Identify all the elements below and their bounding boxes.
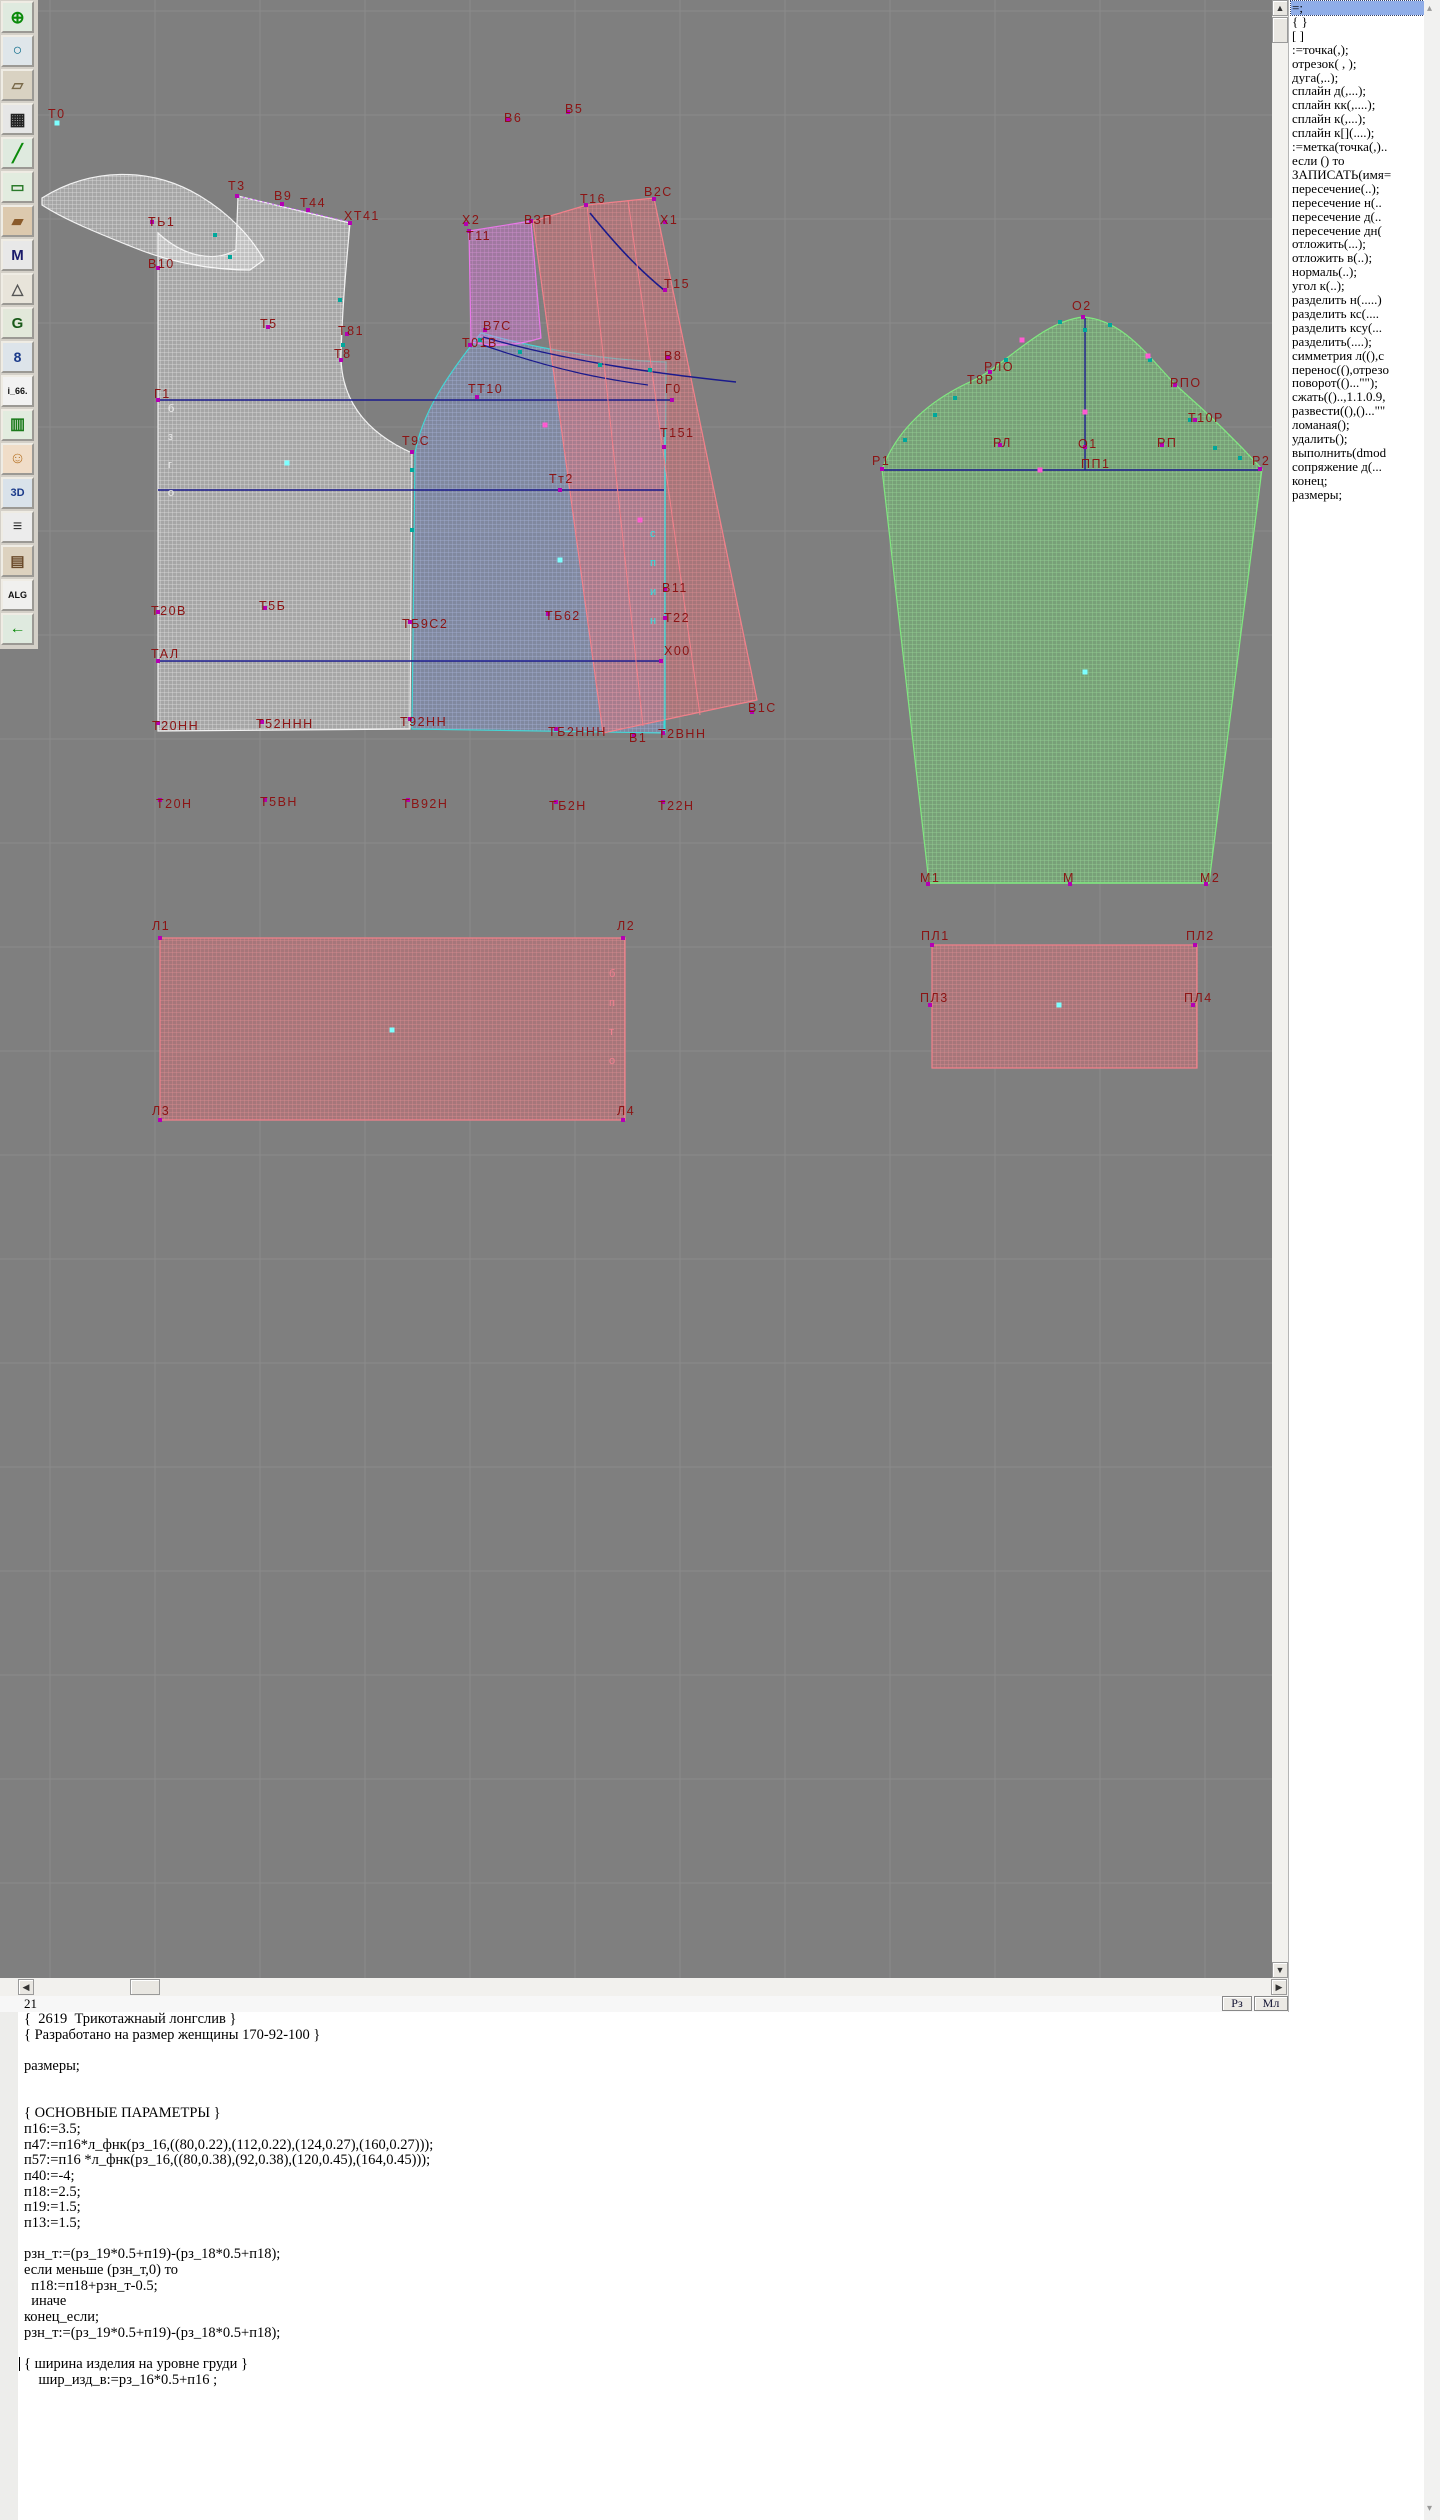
grid-icon-glyph: ▦	[9, 111, 25, 128]
zoom-in-icon[interactable]: ⊕	[1, 1, 34, 33]
algorithms-icon-glyph: ALG	[8, 591, 27, 600]
command-item[interactable]: удалить();	[1291, 432, 1424, 446]
grading-icon-glyph: G	[12, 316, 24, 331]
command-item[interactable]: { }	[1291, 15, 1424, 29]
pattern-piece-icon-glyph: ▰	[12, 214, 24, 229]
svg-text:с: с	[650, 528, 656, 540]
svg-text:ТВ92Н: ТВ92Н	[402, 797, 448, 811]
svg-text:Х00: Х00	[664, 644, 691, 658]
svg-text:В1: В1	[629, 731, 647, 745]
svg-text:Т8: Т8	[334, 347, 352, 361]
code-line: рзн_т:=(рз_19*0.5+п19)-(рз_18*0.5+п18);	[18, 2247, 1426, 2263]
svg-text:Х1: Х1	[660, 213, 678, 227]
svg-text:РП: РП	[1157, 436, 1177, 450]
svg-text:Р1: Р1	[872, 454, 890, 468]
code-line: размеры;	[18, 2059, 1426, 2075]
command-item[interactable]: разделить н(.....)	[1291, 293, 1424, 307]
command-item[interactable]: [ ]	[1291, 29, 1424, 43]
svg-text:М1: М1	[920, 871, 940, 885]
svg-text:Т16: Т16	[580, 192, 606, 206]
command-item[interactable]: сжать(()..,1.1.0.9,	[1291, 390, 1424, 404]
svg-text:В6: В6	[504, 111, 522, 125]
svg-text:ПЛ2: ПЛ2	[1186, 929, 1215, 943]
svg-text:ТБ62: ТБ62	[545, 609, 581, 623]
svg-text:В7С: В7С	[483, 319, 512, 333]
svg-text:Л1: Л1	[152, 919, 170, 933]
ml-button[interactable]: Мл	[1254, 1996, 1288, 2011]
command-item[interactable]: пересечение(..);	[1291, 182, 1424, 196]
scroll-left-icon[interactable]: ◀	[18, 1979, 34, 1995]
code-line: п16:=3.5;	[18, 2122, 1426, 2138]
command-item[interactable]: пересечение д(..	[1291, 210, 1424, 224]
code-line: п18:=2.5;	[18, 2185, 1426, 2201]
size-table-icon-glyph: ▥	[10, 417, 25, 433]
svg-text:Т151: Т151	[660, 426, 695, 440]
text-list-icon[interactable]: ≡	[1, 511, 34, 543]
command-item[interactable]: конец;	[1291, 474, 1424, 488]
svg-text:В5: В5	[565, 102, 583, 116]
svg-text:ВЗП: ВЗП	[524, 213, 553, 227]
canvas-vertical-scrollbar[interactable]: ▲ ▼	[1272, 0, 1288, 1978]
svg-text:Т11: Т11	[466, 229, 491, 243]
code-line: если меньше (рзн_т,0) то	[18, 2263, 1426, 2279]
command-item[interactable]: сплайн к(,...);	[1291, 112, 1424, 126]
code-line: { ОСНОВНЫЕ ПАРАМЕТРЫ }	[18, 2106, 1426, 2122]
svg-text:М: М	[1063, 871, 1075, 885]
svg-text:ПЛ1: ПЛ1	[921, 929, 950, 943]
svg-text:ТАЛ: ТАЛ	[151, 647, 180, 661]
command-item[interactable]: если () то	[1291, 154, 1424, 168]
command-item[interactable]: сплайн к[](....);	[1291, 126, 1424, 140]
command-item[interactable]: разделить кс(....	[1291, 307, 1424, 321]
command-item[interactable]: размеры;	[1291, 488, 1424, 502]
command-item[interactable]: ломаная();	[1291, 418, 1424, 432]
code-line	[18, 2090, 1426, 2106]
command-item[interactable]: перенос((),отрезо	[1291, 363, 1424, 377]
svg-text:Т20НН: Т20НН	[152, 719, 199, 733]
svg-text:Т22Н: Т22Н	[658, 799, 695, 813]
text-list-icon-glyph: ≡	[13, 519, 22, 535]
svg-text:Т3: Т3	[228, 179, 246, 193]
command-item[interactable]: отрезок( , );	[1291, 57, 1424, 71]
code-line: рзн_т:=(рз_19*0.5+п19)-(рз_18*0.5+п18);	[18, 2326, 1426, 2342]
segment-icon-glyph: ╱	[12, 145, 22, 162]
zoom-in-icon-glyph: ⊕	[10, 9, 24, 26]
svg-text:Т2ВНН: Т2ВНН	[658, 727, 706, 741]
current-line-number: 21	[24, 1996, 37, 2012]
code-line	[18, 2075, 1426, 2091]
svg-text:ПЛ3: ПЛ3	[920, 991, 949, 1005]
code-line: п47:=п16*л_фнк(рз_16,((80,0.22),(112,0.2…	[18, 2138, 1426, 2154]
svg-text:Л3: Л3	[152, 1104, 170, 1118]
svg-text:В10: В10	[148, 257, 175, 271]
code-line: п40:=-4;	[18, 2169, 1426, 2185]
command-item[interactable]: пересечение дн(	[1291, 224, 1424, 238]
svg-text:ТБ2Н: ТБ2Н	[549, 799, 587, 813]
status-bar: 21 Рз Мл	[0, 1996, 1288, 2012]
command-list: =;{ }[ ]:=точка(,);отрезок( , );дуга(,..…	[1291, 1, 1424, 502]
svg-text:Г0: Г0	[665, 382, 682, 396]
svg-text:ПЛ4: ПЛ4	[1184, 991, 1213, 1005]
svg-text:ТБ2ННН: ТБ2ННН	[548, 725, 607, 739]
svg-text:Л4: Л4	[617, 1104, 635, 1118]
command-item[interactable]: угол к(..);	[1291, 279, 1424, 293]
svg-text:О2: О2	[1072, 299, 1092, 313]
print-preview-icon-glyph: ▱	[12, 78, 24, 93]
zoom-icon-glyph: ○	[13, 43, 23, 59]
svg-text:ХТ41: ХТ41	[344, 209, 380, 223]
pattern-canvas[interactable]: Т0Т3В9Т44ХТ41ТЬ1В10Т5Т81Т8Г1Т9СТТ10Г0Т15…	[0, 0, 1272, 1978]
svg-text:п: п	[609, 997, 615, 1009]
svg-text:Л2: Л2	[617, 919, 635, 933]
svg-text:Т01В: Т01В	[462, 336, 498, 350]
view-3d-icon[interactable]: 3D	[1, 477, 34, 509]
vertical-scroll-thumb[interactable]	[1272, 17, 1288, 43]
command-item[interactable]: развести((),()...""	[1291, 404, 1424, 418]
command-item[interactable]: нормаль(..);	[1291, 265, 1424, 279]
image-icon[interactable]: ▭	[1, 171, 34, 203]
command-item[interactable]: сплайн д(,...);	[1291, 84, 1424, 98]
code-line	[18, 2043, 1426, 2059]
svg-text:Т9С: Т9С	[402, 434, 430, 448]
zoom-icon[interactable]: ○	[1, 35, 34, 67]
command-item[interactable]: :=точка(,);	[1291, 43, 1424, 57]
code-line: конец_если;	[18, 2310, 1426, 2326]
command-item[interactable]: разделить ксу(...	[1291, 321, 1424, 335]
grid-icon[interactable]: ▦	[1, 103, 34, 135]
drafting-tools-icon-glyph: △	[12, 282, 24, 297]
svg-text:и: и	[650, 586, 656, 598]
code-line: п57:=п16 *л_фнк(рз_16,((80,0.38),(92,0.3…	[18, 2153, 1426, 2169]
svg-text:п: п	[650, 557, 656, 569]
code-line	[18, 2341, 1426, 2357]
pattern-pieces[interactable]	[42, 174, 1262, 1120]
command-item[interactable]: дуга(,..);	[1291, 71, 1424, 85]
command-item[interactable]: сопряжение д(...	[1291, 460, 1424, 474]
size-table-icon[interactable]: ▥	[1, 409, 34, 441]
command-item[interactable]: сплайн кк(,....);	[1291, 98, 1424, 112]
code-line: шир_изд_в:=рз_16*0.5+п16 ;	[18, 2373, 1426, 2389]
svg-text:В1С: В1С	[748, 701, 777, 715]
svg-text:Р2: Р2	[1252, 454, 1270, 468]
docs-icon[interactable]: ▤	[1, 545, 34, 577]
svg-text:ТТ10: ТТ10	[468, 382, 503, 396]
exit-icon[interactable]: ←	[1, 613, 34, 645]
svg-text:Тт2: Тт2	[549, 472, 574, 486]
algorithms-icon[interactable]: ALG	[1, 579, 34, 611]
svg-text:Т5: Т5	[260, 317, 278, 331]
command-item[interactable]: :=метка(точка(,)..	[1291, 140, 1424, 154]
exit-icon-glyph: ←	[10, 621, 26, 637]
ruler-icon-glyph: 8	[14, 350, 22, 364]
scroll-up-icon[interactable]: ▲	[1272, 0, 1288, 16]
code-line	[18, 2232, 1426, 2248]
svg-text:Т10Р: Т10Р	[1188, 411, 1224, 425]
code-line: п13:=1.5;	[18, 2216, 1426, 2232]
rail-up-icon[interactable]: ▴	[1427, 3, 1432, 14]
svg-text:т: т	[609, 1026, 614, 1038]
canvas-horizontal-scrollbar[interactable]: ◀ ▶	[0, 1978, 1288, 1996]
svg-text:М2: М2	[1200, 871, 1220, 885]
command-item[interactable]: ЗАПИСАТЬ(имя=	[1291, 168, 1424, 182]
svg-text:ТБ9С2: ТБ9С2	[402, 617, 448, 631]
app-window: Т0Т3В9Т44ХТ41ТЬ1В10Т5Т81Т8Г1Т9СТТ10Г0Т15…	[0, 0, 1440, 2520]
svg-text:ПП1: ПП1	[1081, 457, 1110, 471]
scroll-right-icon[interactable]: ▶	[1271, 1979, 1287, 1995]
svg-text:РПО: РПО	[1170, 376, 1202, 390]
file-i66-icon-glyph: i_66.	[7, 387, 27, 396]
command-item[interactable]: выполнить(dmod	[1291, 446, 1424, 460]
command-item[interactable]: поворот(()..."");	[1291, 376, 1424, 390]
code-line: п18:=п18+рзн_т-0.5;	[18, 2279, 1426, 2295]
command-item[interactable]: пересечение н(..	[1291, 196, 1424, 210]
editor-margin	[0, 1978, 18, 2520]
model-photo-icon-glyph: ☺	[9, 451, 25, 467]
grading-icon[interactable]: G	[1, 307, 34, 339]
band-rect-small	[932, 945, 1197, 1068]
svg-text:В9: В9	[274, 189, 292, 203]
measurements-icon-glyph: M	[11, 248, 24, 263]
code-editor[interactable]: { 2619 Трикотажнаый лонгслив }{ Разработ…	[18, 2012, 1426, 2520]
code-line: иначе	[18, 2294, 1426, 2310]
svg-text:О1: О1	[1078, 437, 1098, 451]
svg-text:ТЬ1: ТЬ1	[148, 215, 175, 229]
code-line: { ширина изделия на уровне груди }	[18, 2357, 1426, 2373]
svg-text:Т44: Т44	[300, 196, 326, 210]
svg-text:В2С: В2С	[644, 185, 673, 199]
print-preview-icon[interactable]: ▱	[1, 69, 34, 101]
svg-text:Х2: Х2	[462, 213, 480, 227]
measurements-icon[interactable]: M	[1, 239, 34, 271]
model-photo-icon[interactable]: ☺	[1, 443, 34, 475]
rz-button[interactable]: Рз	[1222, 1996, 1252, 2011]
text-caret	[19, 2357, 20, 2371]
segment-icon[interactable]: ╱	[1, 137, 34, 169]
svg-text:Т5ВН: Т5ВН	[260, 795, 298, 809]
scroll-down-icon[interactable]: ▼	[1272, 1962, 1288, 1978]
drafting-tools-icon[interactable]: △	[1, 273, 34, 305]
image-icon-glyph: ▭	[10, 180, 24, 195]
svg-text:з: з	[168, 431, 173, 443]
pattern-piece-icon[interactable]: ▰	[1, 205, 34, 237]
ruler-icon[interactable]: 8	[1, 341, 34, 373]
rail-down-icon[interactable]: ▾	[1427, 2503, 1432, 2514]
svg-text:н: н	[650, 615, 656, 627]
command-item[interactable]: отложить(...);	[1291, 237, 1424, 251]
svg-text:Т81: Т81	[338, 324, 364, 338]
command-item[interactable]: =;	[1291, 1, 1424, 15]
svg-text:РЛ: РЛ	[993, 436, 1012, 450]
svg-text:о: о	[609, 1055, 615, 1067]
svg-text:В11: В11	[662, 581, 688, 595]
file-i66-icon[interactable]: i_66.	[1, 375, 34, 407]
view-3d-icon-glyph: 3D	[10, 488, 24, 499]
command-item[interactable]: симметрия л((),с	[1291, 349, 1424, 363]
docs-icon-glyph: ▤	[10, 554, 24, 569]
svg-text:Т20Н: Т20Н	[156, 797, 193, 811]
horizontal-scroll-thumb[interactable]	[130, 1979, 160, 1995]
right-scrollbar-rail[interactable]: ▴ ▾	[1424, 0, 1440, 2520]
svg-text:Т52ННН: Т52ННН	[256, 717, 314, 731]
code-line: { 2619 Трикотажнаый лонгслив }	[18, 2012, 1426, 2028]
svg-text:Т8Р: Т8Р	[967, 373, 994, 387]
svg-text:Т20В: Т20В	[151, 604, 187, 618]
svg-text:б: б	[609, 968, 615, 980]
svg-text:РЛО: РЛО	[984, 360, 1014, 374]
svg-text:Т5Б: Т5Б	[259, 599, 286, 613]
code-line: { Разработано на размер женщины 170-92-1…	[18, 2028, 1426, 2044]
svg-text:В8: В8	[664, 349, 682, 363]
svg-text:б: б	[168, 403, 174, 415]
left-toolbar: ⊕ ○ ▱ ▦ ╱ ▭ ▰ M △ G 8 i_66. ▥ ☺ 3D ≡ ▤ A…	[0, 0, 38, 649]
svg-text:Т92НН: Т92НН	[400, 715, 447, 729]
command-item[interactable]: разделить(....);	[1291, 335, 1424, 349]
svg-text:Т22: Т22	[664, 611, 690, 625]
svg-text:о: о	[168, 487, 174, 499]
code-line: п19:=1.5;	[18, 2200, 1426, 2216]
svg-text:Т0: Т0	[48, 107, 66, 121]
command-item[interactable]: отложить в(..);	[1291, 251, 1424, 265]
svg-text:Т15: Т15	[664, 277, 690, 291]
svg-text:г: г	[168, 459, 172, 471]
svg-text:Г1: Г1	[154, 387, 171, 401]
